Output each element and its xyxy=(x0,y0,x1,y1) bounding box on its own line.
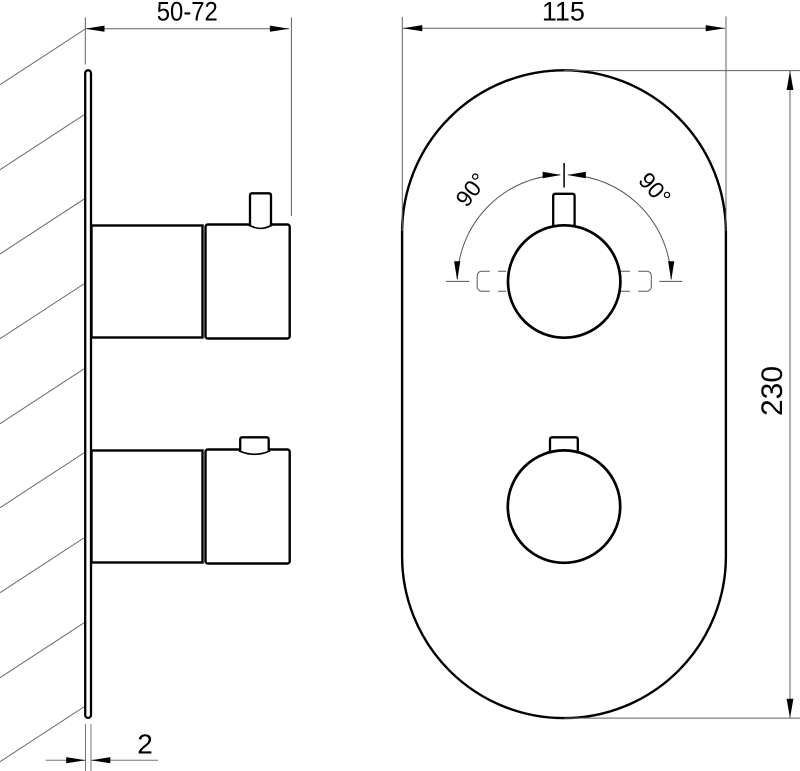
svg-text:115: 115 xyxy=(542,0,585,27)
svg-text:2: 2 xyxy=(137,729,153,760)
svg-text:230: 230 xyxy=(756,366,789,416)
svg-text:50-72: 50-72 xyxy=(157,0,218,27)
